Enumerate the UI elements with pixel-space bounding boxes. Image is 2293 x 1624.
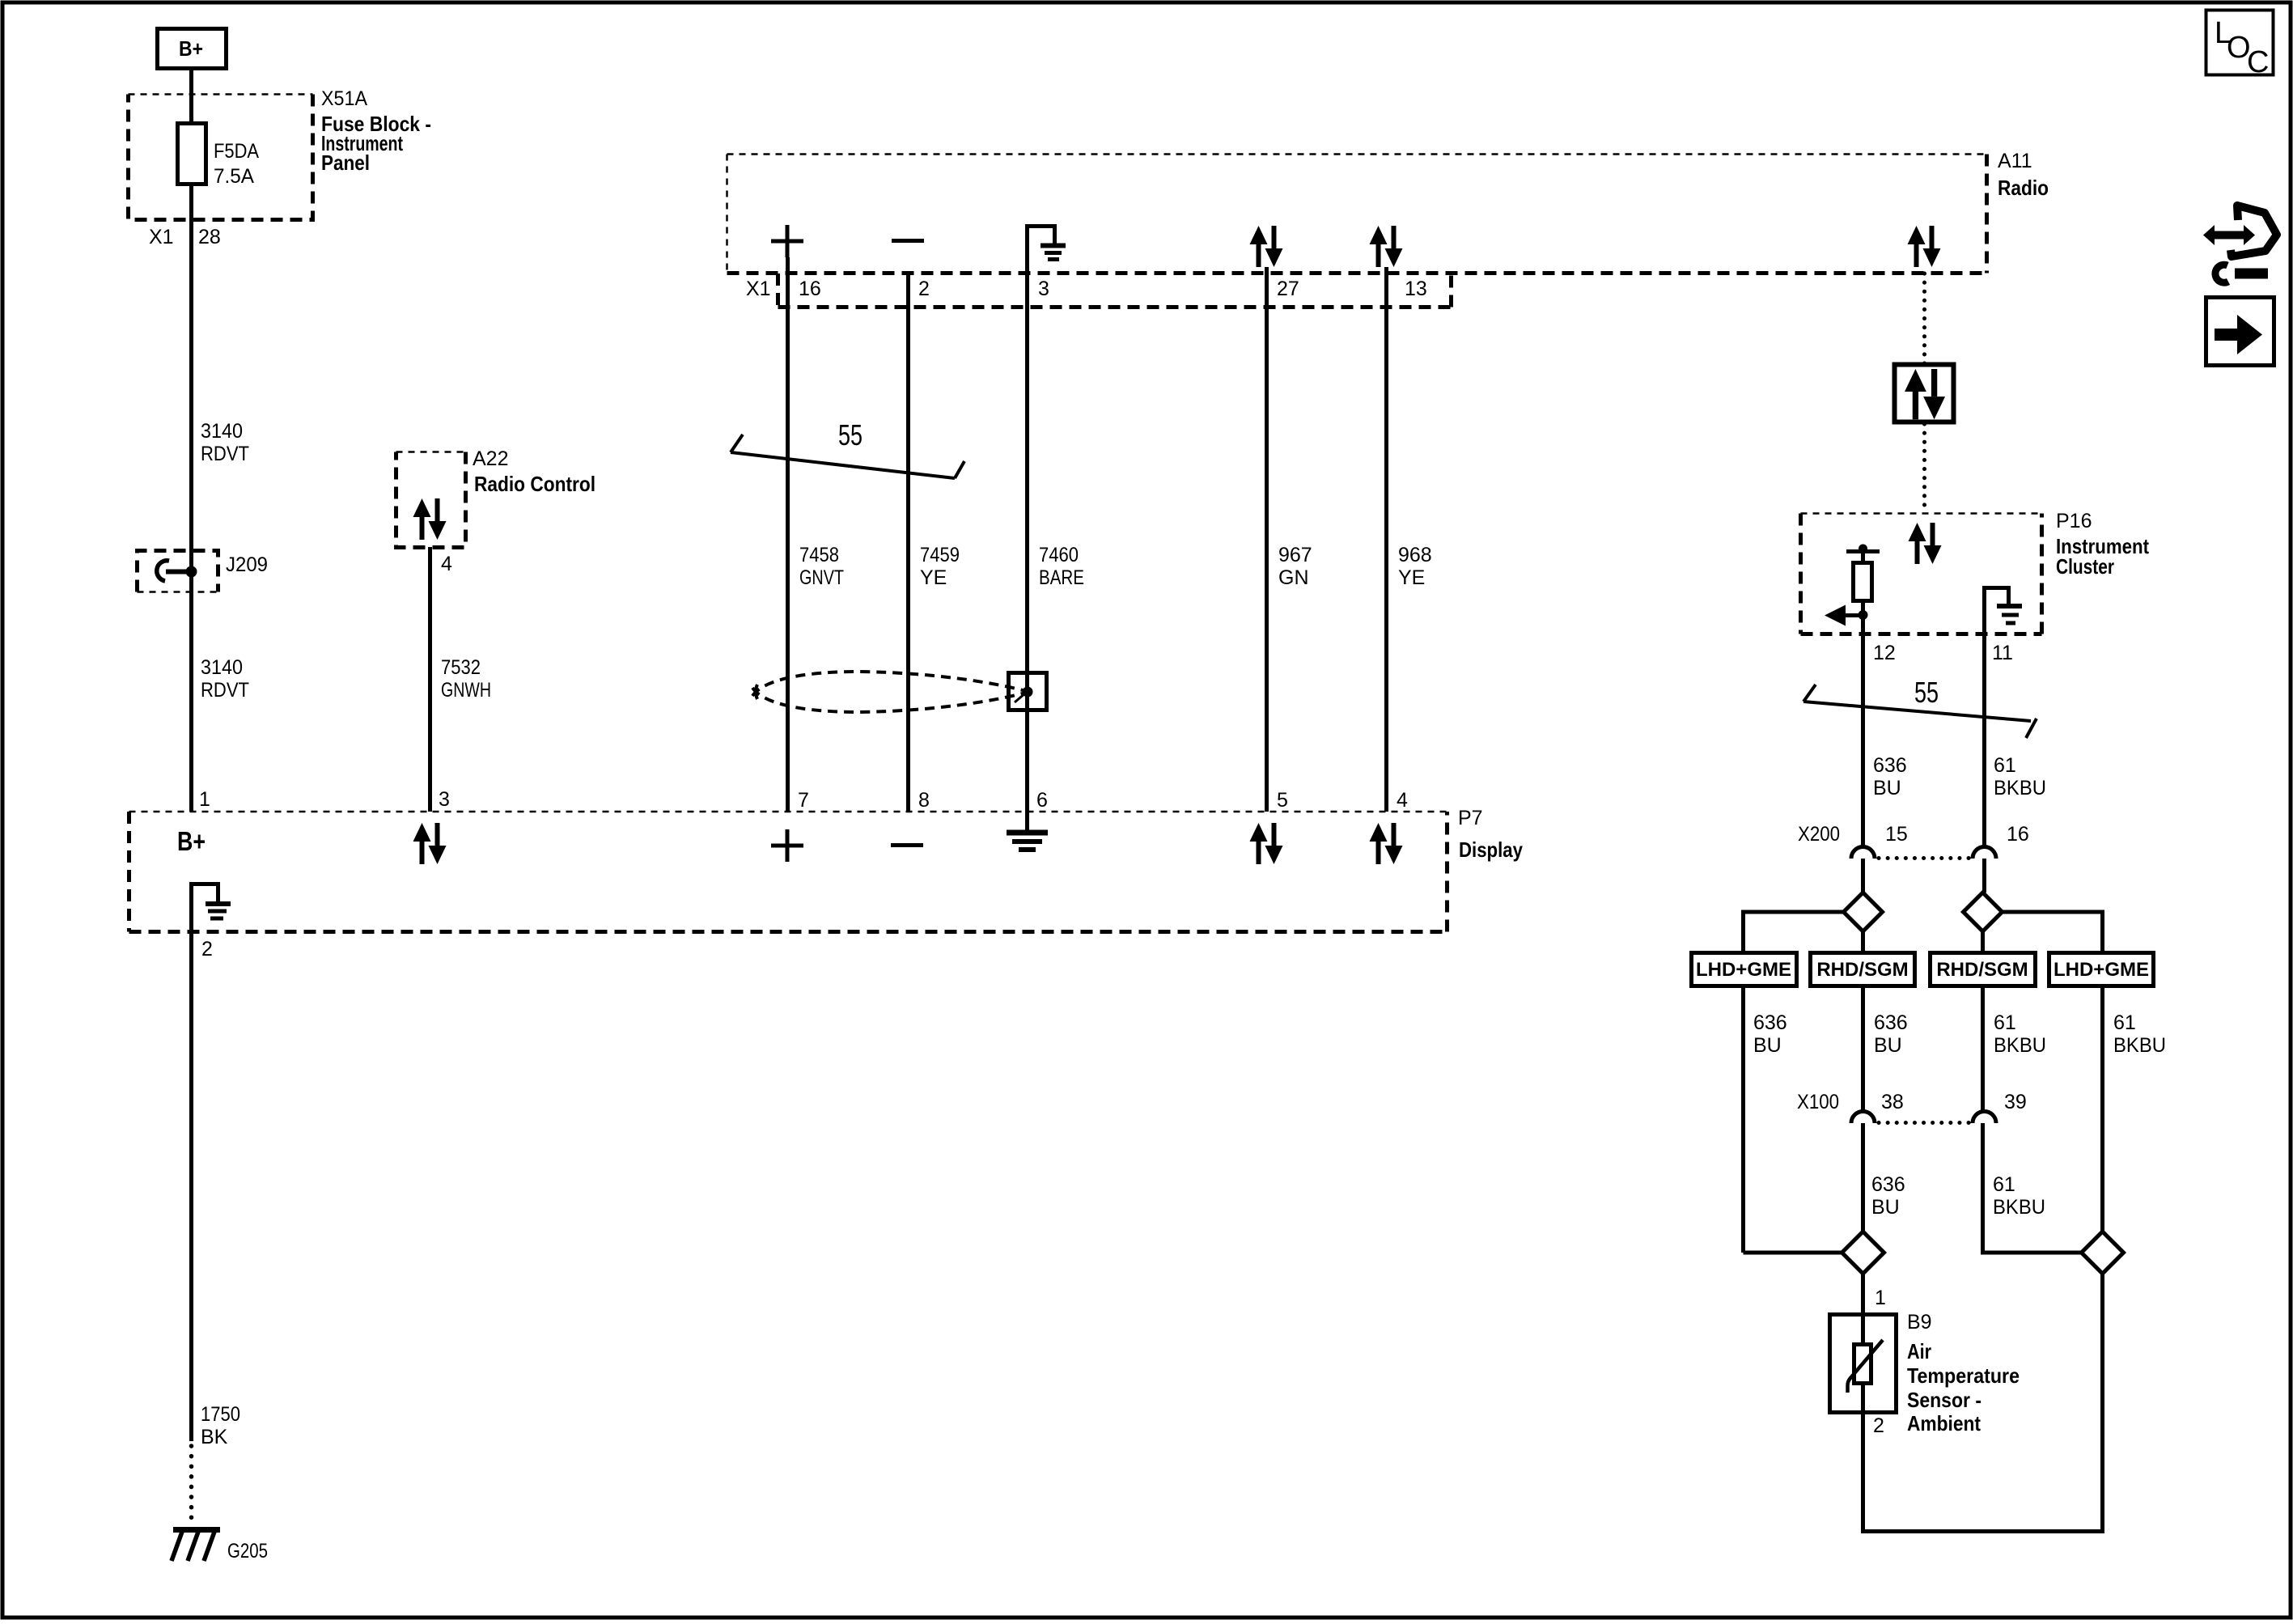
svg-text:7460: 7460	[1039, 544, 1079, 566]
svg-text:61: 61	[2113, 1011, 2136, 1034]
svg-text:BK: BK	[201, 1426, 228, 1448]
svg-text:Display: Display	[1459, 837, 1523, 862]
svg-text:5: 5	[1277, 789, 1288, 812]
svg-text:BARE: BARE	[1039, 566, 1084, 589]
svg-text:12: 12	[1873, 642, 1896, 664]
svg-text:15: 15	[1885, 823, 1908, 846]
svg-text:27: 27	[1277, 278, 1299, 300]
svg-text:7458: 7458	[799, 544, 839, 566]
svg-text:1750: 1750	[201, 1403, 240, 1426]
svg-text:7459: 7459	[920, 544, 960, 566]
svg-text:16: 16	[2007, 823, 2029, 846]
svg-text:GNWH: GNWH	[441, 679, 491, 702]
svg-text:61: 61	[1994, 754, 2016, 777]
svg-text:RDVT: RDVT	[201, 443, 249, 465]
svg-text:1: 1	[199, 788, 210, 811]
svg-text:Radio: Radio	[1998, 176, 2049, 200]
svg-text:RDVT: RDVT	[201, 679, 249, 702]
svg-text:4: 4	[441, 553, 452, 575]
svg-text:A11: A11	[1998, 150, 2032, 172]
svg-text:GN: GN	[1278, 566, 1309, 589]
svg-text:BU: BU	[1753, 1034, 1782, 1057]
svg-text:Panel: Panel	[321, 151, 370, 175]
svg-text:BKBU: BKBU	[1993, 1196, 2045, 1219]
svg-text:Sensor -: Sensor -	[1907, 1388, 1981, 1412]
svg-text:38: 38	[1881, 1091, 1904, 1113]
svg-text:2: 2	[1873, 1414, 1884, 1437]
svg-text:636: 636	[1874, 1011, 1908, 1034]
svg-text:X1: X1	[746, 278, 771, 300]
svg-text:G205: G205	[227, 1540, 268, 1563]
svg-text:X1: X1	[149, 226, 174, 248]
svg-text:BKBU: BKBU	[1994, 1034, 2046, 1057]
svg-text:BU: BU	[1873, 777, 1901, 799]
svg-text:3140: 3140	[201, 656, 243, 679]
svg-text:636: 636	[1753, 1011, 1787, 1034]
svg-text:3140: 3140	[201, 420, 243, 443]
svg-text:BU: BU	[1874, 1034, 1902, 1057]
svg-text:Ambient: Ambient	[1907, 1411, 1981, 1435]
svg-text:BKBU: BKBU	[1994, 777, 2046, 799]
svg-text:Radio Control: Radio Control	[474, 472, 596, 496]
svg-text:7.5A: 7.5A	[214, 165, 254, 188]
svg-text:8: 8	[918, 789, 930, 812]
svg-text:A22: A22	[473, 447, 508, 470]
svg-text:2: 2	[201, 938, 213, 960]
svg-text:55: 55	[1914, 676, 1939, 709]
svg-text:968: 968	[1398, 544, 1432, 566]
svg-text:28: 28	[198, 226, 221, 248]
svg-text:7532: 7532	[441, 656, 481, 679]
svg-text:39: 39	[2004, 1091, 2027, 1113]
svg-text:6: 6	[1036, 789, 1048, 812]
svg-text:RHD/SGM: RHD/SGM	[1936, 959, 2028, 981]
svg-text:P16: P16	[2056, 510, 2092, 532]
svg-text:Cluster: Cluster	[2056, 554, 2114, 579]
svg-text:YE: YE	[920, 566, 947, 589]
svg-text:X100: X100	[1797, 1091, 1839, 1113]
svg-text:61: 61	[1994, 1011, 2016, 1034]
svg-text:F5DA: F5DA	[214, 140, 259, 163]
svg-text:4: 4	[1397, 789, 1408, 812]
svg-text:B9: B9	[1907, 1311, 1932, 1334]
svg-text:Temperature: Temperature	[1907, 1363, 2020, 1388]
svg-text:B+: B+	[177, 826, 206, 856]
svg-text:RHD/SGM: RHD/SGM	[1816, 959, 1908, 981]
svg-text:55: 55	[838, 418, 863, 452]
svg-text:C: C	[2247, 45, 2269, 79]
svg-text:BKBU: BKBU	[2113, 1034, 2166, 1057]
svg-text:61: 61	[1993, 1173, 2015, 1196]
svg-text:GNVT: GNVT	[799, 566, 844, 589]
svg-text:1: 1	[1875, 1287, 1886, 1309]
svg-text:X51A: X51A	[321, 87, 367, 110]
svg-text:13: 13	[1405, 278, 1427, 300]
svg-text:7: 7	[798, 789, 809, 812]
svg-text:636: 636	[1871, 1173, 1905, 1196]
svg-text:P7: P7	[1458, 807, 1483, 829]
svg-text:YE: YE	[1398, 566, 1425, 589]
svg-text:X200: X200	[1798, 823, 1840, 846]
svg-text:2: 2	[918, 278, 930, 300]
svg-text:Air: Air	[1907, 1339, 1931, 1363]
svg-text:B+: B+	[179, 36, 203, 61]
svg-text:16: 16	[799, 278, 821, 300]
svg-text:BU: BU	[1871, 1196, 1900, 1219]
svg-text:967: 967	[1278, 544, 1312, 566]
svg-text:3: 3	[1038, 278, 1049, 300]
svg-text:LHD+GME: LHD+GME	[2054, 959, 2149, 981]
svg-text:LHD+GME: LHD+GME	[1696, 959, 1791, 981]
svg-text:3: 3	[439, 788, 450, 811]
svg-text:11: 11	[1992, 642, 2013, 664]
svg-text:J209: J209	[226, 553, 268, 576]
svg-text:636: 636	[1873, 754, 1907, 777]
